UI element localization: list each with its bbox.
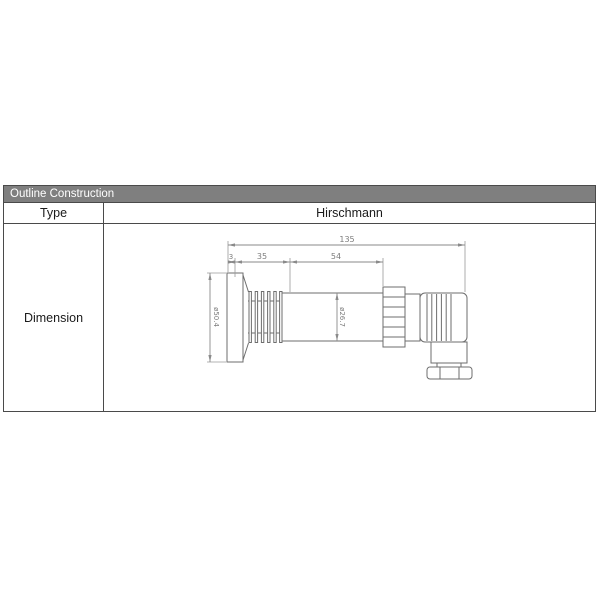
clamp-flange [227, 273, 243, 362]
hex-lock-nut [383, 287, 405, 347]
dim-body-length-label: 54 [331, 252, 341, 261]
device-outline [227, 273, 472, 379]
page: Outline Construction Type Hirschmann Dim… [0, 0, 600, 600]
connector-neck [405, 294, 420, 341]
dimension-labels: 135 3 35 54 ø50.4 ø26.7 [212, 235, 355, 327]
dim-port-length-label: 3 [229, 253, 233, 261]
hirschmann-connector [420, 293, 467, 342]
cable-gland-washer [437, 363, 461, 367]
taper-cone [243, 275, 249, 360]
dim-body-diameter-label: ø26.7 [338, 307, 346, 327]
heatsink-fins [248, 292, 282, 343]
technical-drawing: 135 3 35 54 ø50.4 ø26.7 [0, 0, 600, 600]
connector-terminal-box [431, 342, 467, 363]
sensor-body [282, 293, 383, 341]
dim-overall-length-label: 135 [339, 235, 354, 244]
connector-ribs [427, 294, 451, 341]
dim-heatsink-length-label: 35 [257, 252, 267, 261]
cable-gland-nut [427, 367, 472, 379]
dim-flange-diameter-label: ø50.4 [212, 307, 220, 327]
